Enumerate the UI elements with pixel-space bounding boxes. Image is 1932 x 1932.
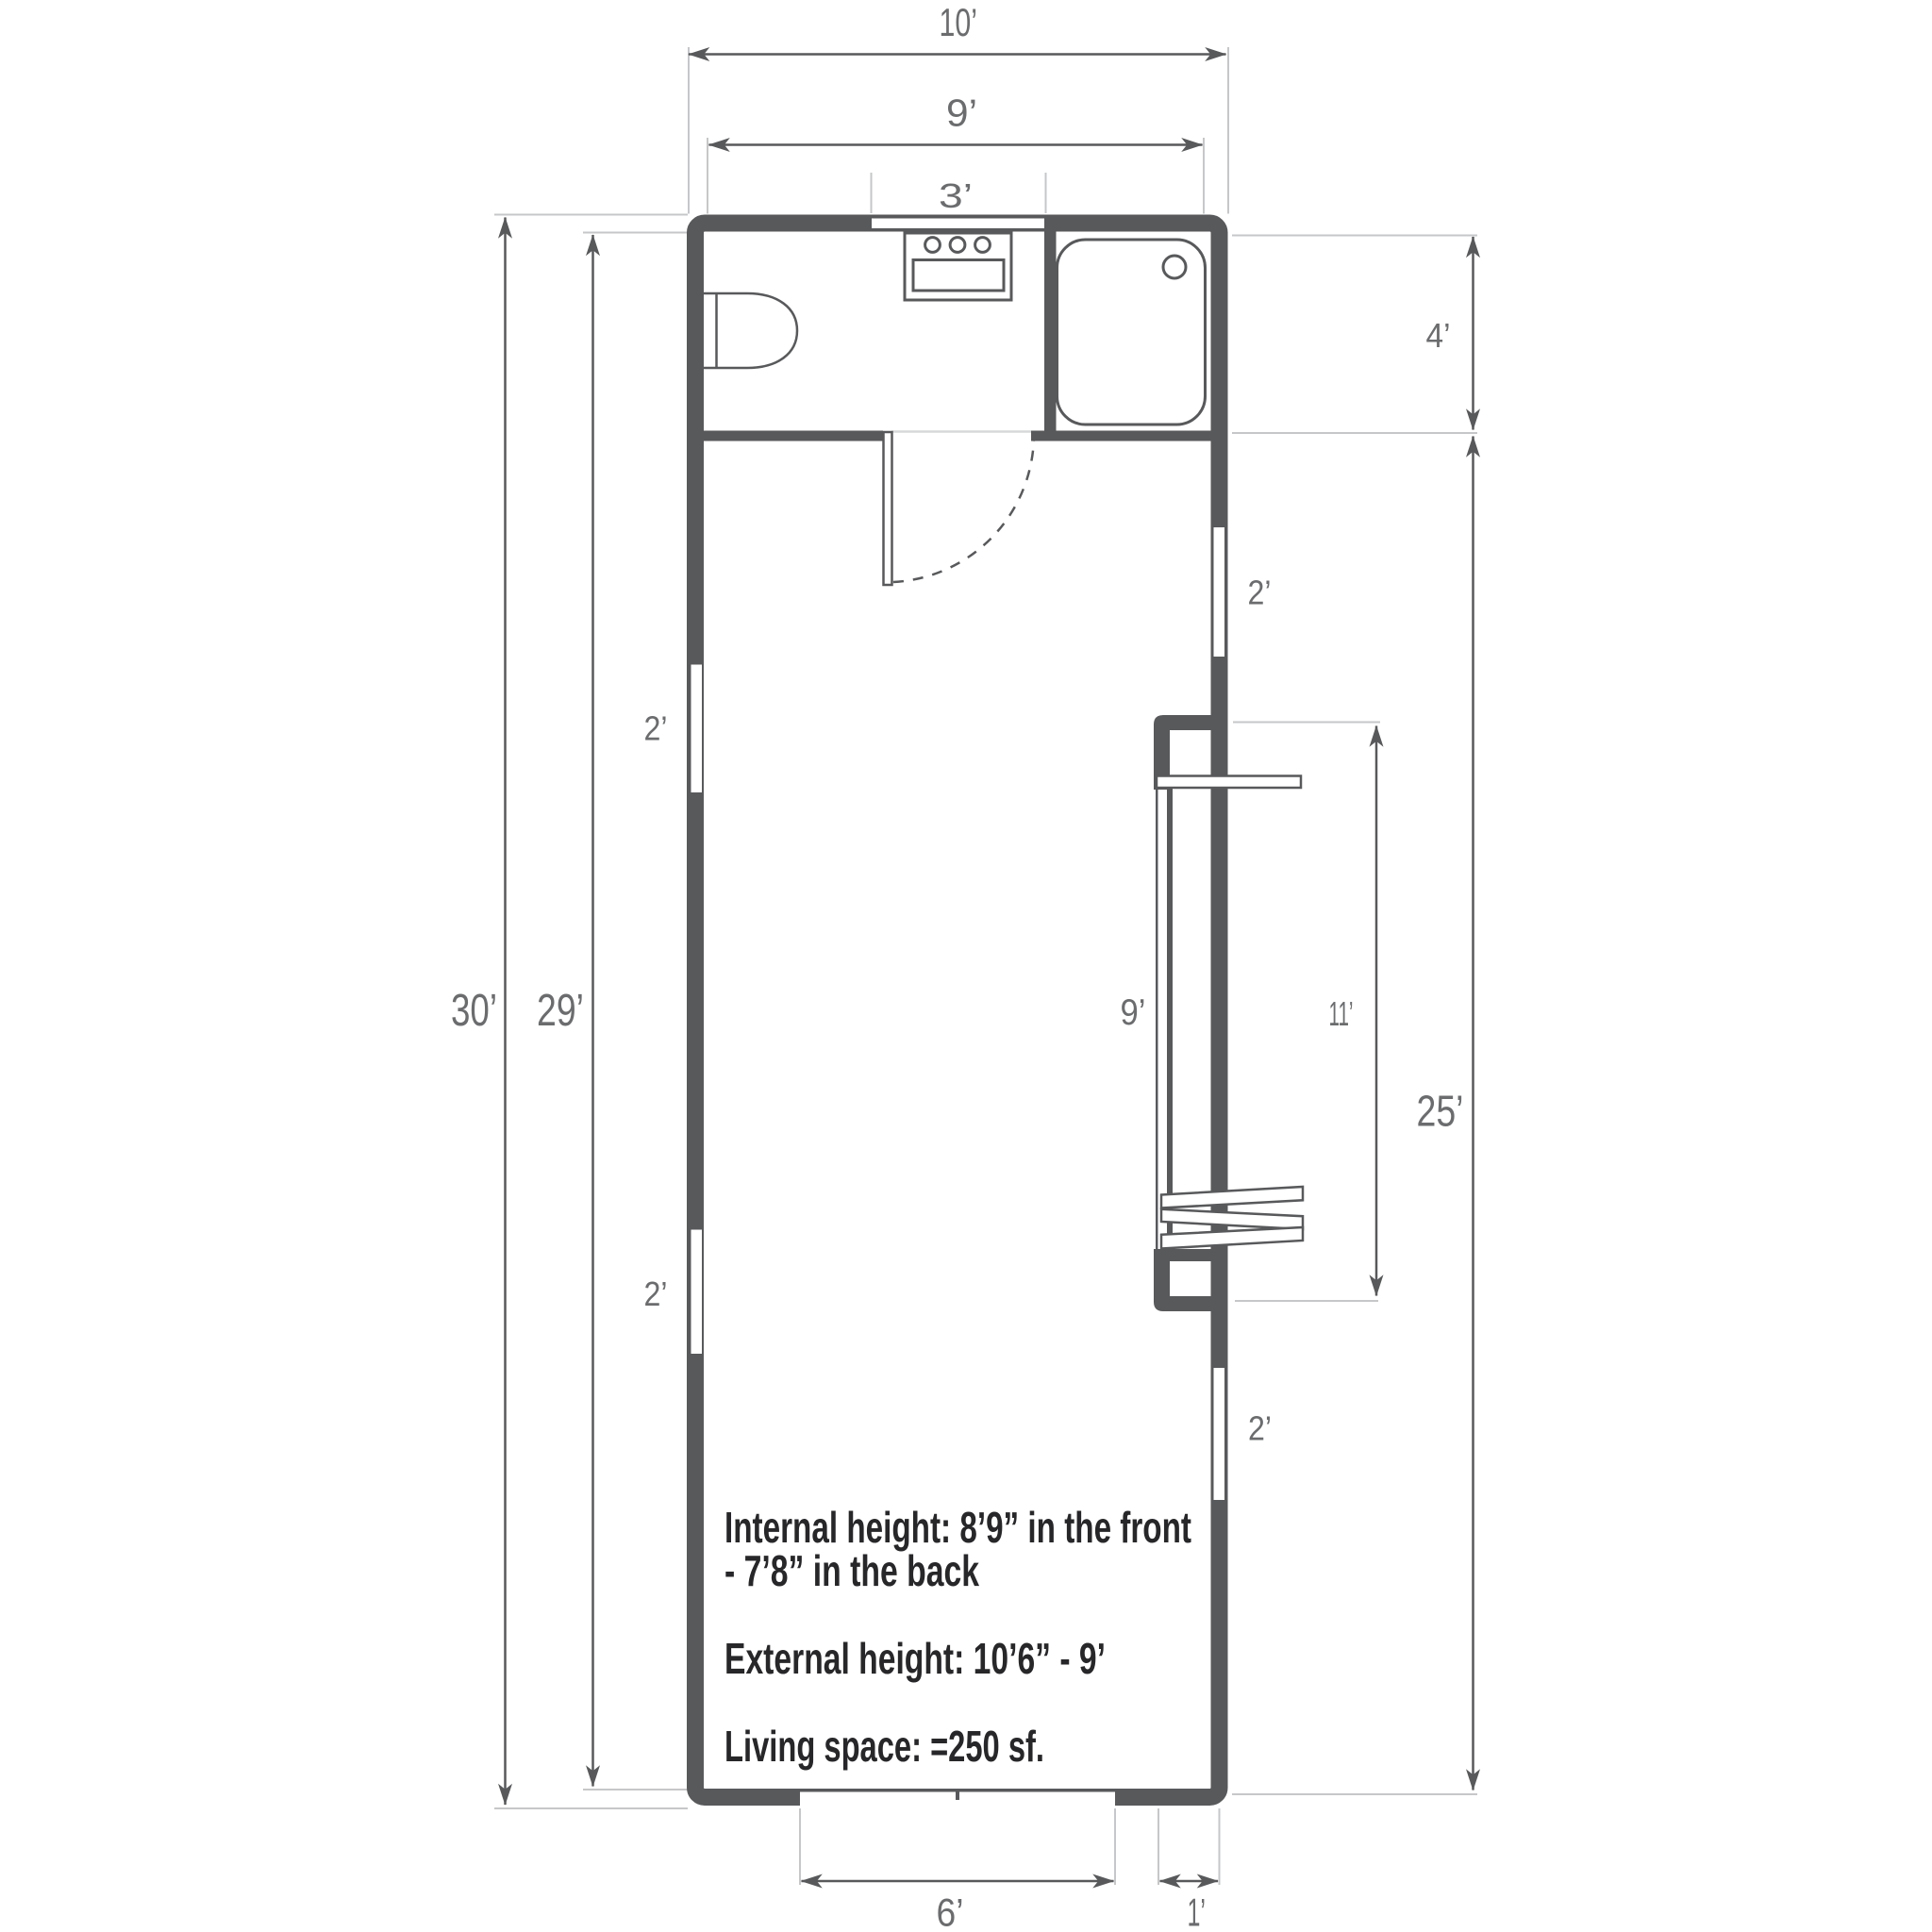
svg-text:9’: 9’: [1121, 992, 1146, 1033]
svg-text:11’: 11’: [1329, 994, 1354, 1033]
svg-text:2’: 2’: [1248, 574, 1272, 612]
svg-text:2’: 2’: [644, 709, 668, 748]
svg-text:3’: 3’: [939, 176, 973, 215]
svg-text:1’: 1’: [1188, 1890, 1207, 1932]
svg-text:29’: 29’: [537, 986, 584, 1036]
svg-text:Living space: =250 sf.: Living space: =250 sf.: [724, 1722, 1044, 1771]
svg-text:4’: 4’: [1426, 316, 1451, 355]
svg-text:Internal height: 8’9” in the f: Internal height: 8’9” in the front: [724, 1503, 1191, 1552]
svg-text:2’: 2’: [1248, 1409, 1272, 1448]
svg-text:25’: 25’: [1417, 1087, 1464, 1136]
svg-text:- 7’8” in the back: - 7’8” in the back: [724, 1546, 979, 1595]
svg-text:6’: 6’: [937, 1890, 964, 1932]
svg-text:2’: 2’: [644, 1274, 668, 1313]
svg-text:30’: 30’: [451, 986, 497, 1036]
svg-text:10’: 10’: [940, 0, 978, 44]
svg-text:External height: 10’6” - 9’: External height: 10’6” - 9’: [724, 1634, 1106, 1683]
svg-text:9’: 9’: [946, 92, 977, 135]
